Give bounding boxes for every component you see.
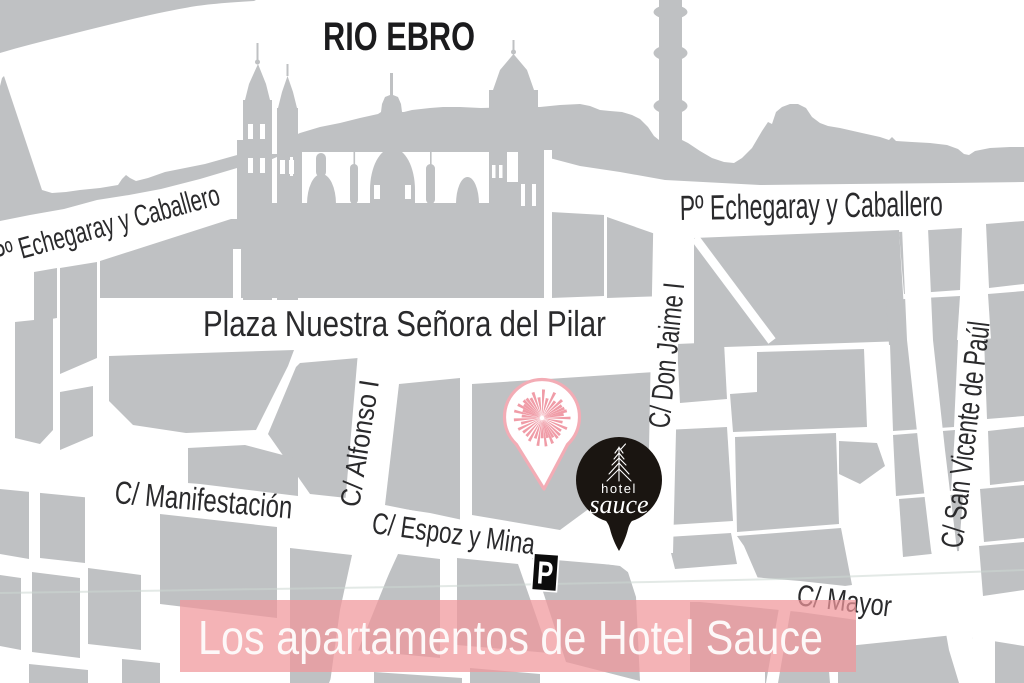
svg-text:Los apartamentos de Hotel Sauc: Los apartamentos de Hotel Sauce	[198, 612, 823, 665]
svg-text:Plaza Nuestra Señora del Pilar: Plaza Nuestra Señora del Pilar	[203, 303, 606, 344]
svg-text:P: P	[536, 554, 554, 591]
svg-text:RIO EBRO: RIO EBRO	[323, 15, 475, 59]
svg-text:Pº Echegaray y Caballero: Pº Echegaray y Caballero	[679, 184, 943, 228]
svg-text:sauce: sauce	[589, 490, 648, 519]
